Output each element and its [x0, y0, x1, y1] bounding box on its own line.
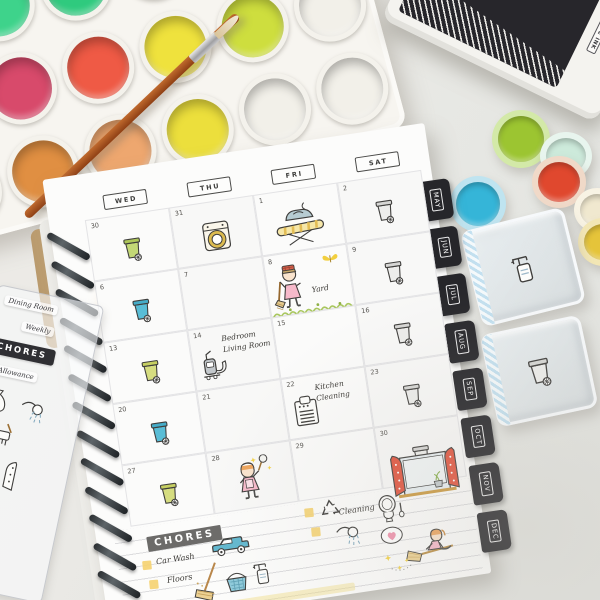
trash-green-icon: [120, 233, 145, 263]
calendar-cell: 27: [121, 453, 214, 527]
calendar-cell: 29: [290, 428, 383, 502]
calendar-cell: 28: [206, 440, 299, 514]
spray-bottle-icon: [507, 247, 539, 287]
handwritten-note: Bedroom Living Room: [221, 328, 271, 355]
cell-date: 7: [183, 271, 188, 280]
trash-lime-icon: [138, 356, 163, 386]
cell-date: 16: [361, 306, 370, 315]
push-broom-icon: [189, 560, 229, 600]
cell-date: 14: [193, 331, 202, 340]
paint-pan: [0, 44, 65, 132]
month-tab-nov: NOV: [469, 462, 505, 506]
checkbox: [311, 527, 321, 537]
trash-blue-icon: [129, 295, 154, 325]
paint-pan: [0, 0, 43, 49]
month-tab-oct: OCT: [460, 414, 496, 458]
sheet-label-chores: CHORES: [0, 337, 56, 367]
cell-date: 15: [277, 319, 286, 328]
cell-date: 31: [174, 209, 183, 218]
month-tab-sep: SEP: [452, 367, 488, 411]
iron-board-icon: [270, 198, 330, 248]
shower-icon: [15, 396, 47, 431]
desk-scene: color the PREMIUM DYE INK INKY BLACK MAY…: [0, 0, 600, 600]
paint-pan: [109, 0, 197, 8]
spray-bottle-icon: [251, 557, 274, 588]
trash-gray-icon: [372, 196, 397, 226]
cell-date: 20: [118, 405, 127, 414]
handwritten-note: Kitchen Cleaning: [314, 378, 351, 403]
curtain-window-icon: [385, 443, 467, 511]
cell-date: 29: [295, 441, 304, 450]
scrub-brush-icon: [0, 419, 17, 451]
checkbox: [149, 580, 159, 590]
trash-gray-icon: [390, 318, 415, 348]
cell-date: 2: [342, 184, 347, 193]
cell-date: 6: [99, 283, 104, 292]
trash-can-icon: [523, 353, 554, 390]
cell-date: 30: [90, 221, 99, 230]
stamp-block-trash: [479, 314, 598, 427]
curtain-icon: [0, 458, 19, 492]
money-bag-icon: [0, 385, 10, 415]
shower-icon: [333, 521, 363, 555]
sheet-label-allowance: Allowance: [0, 364, 39, 383]
cell-date: 13: [109, 344, 118, 353]
cell-date: 8: [268, 258, 273, 267]
ink-pad: color the PREMIUM DYE INK INKY BLACK: [381, 0, 600, 123]
checkbox: [304, 508, 314, 518]
trash-gray-icon: [399, 379, 424, 409]
cell-date: 1: [258, 197, 263, 206]
butterfly-icon: [321, 251, 341, 268]
handwritten-note: Yard: [311, 283, 330, 296]
planner-notebook: MAYJUNJULAUGSEPOCTNOVDEC WEDTHUFRISAT 30…: [29, 123, 492, 600]
trash-blue-icon: [147, 417, 172, 447]
paint-pan: [286, 0, 374, 50]
girl-duster-icon: [228, 453, 277, 509]
paint-pan: [32, 0, 120, 29]
paint-pan: [54, 24, 142, 112]
checkbox: [142, 560, 152, 570]
trash-lime-icon: [156, 478, 181, 508]
cell-date: 27: [127, 466, 136, 475]
cell-date: 21: [202, 393, 211, 402]
washi-tape-edge: [481, 334, 511, 426]
bucket-icon: [222, 568, 251, 596]
month-tab-dec: DEC: [477, 509, 513, 553]
trash-gray-icon: [381, 257, 406, 287]
cell-date: 28: [211, 454, 220, 463]
cell-date: 23: [370, 367, 379, 376]
cell-date: 30: [379, 429, 388, 438]
sheet-label-dining-room: Dining Room: [4, 295, 59, 316]
paint-pan: [308, 45, 396, 133]
hatch-pattern: [398, 0, 587, 88]
cell-date: 22: [286, 380, 295, 389]
cell-date: 9: [352, 245, 357, 254]
sheet-label-weekly: Weekly: [21, 321, 56, 338]
washing-machine-icon: [198, 216, 235, 254]
